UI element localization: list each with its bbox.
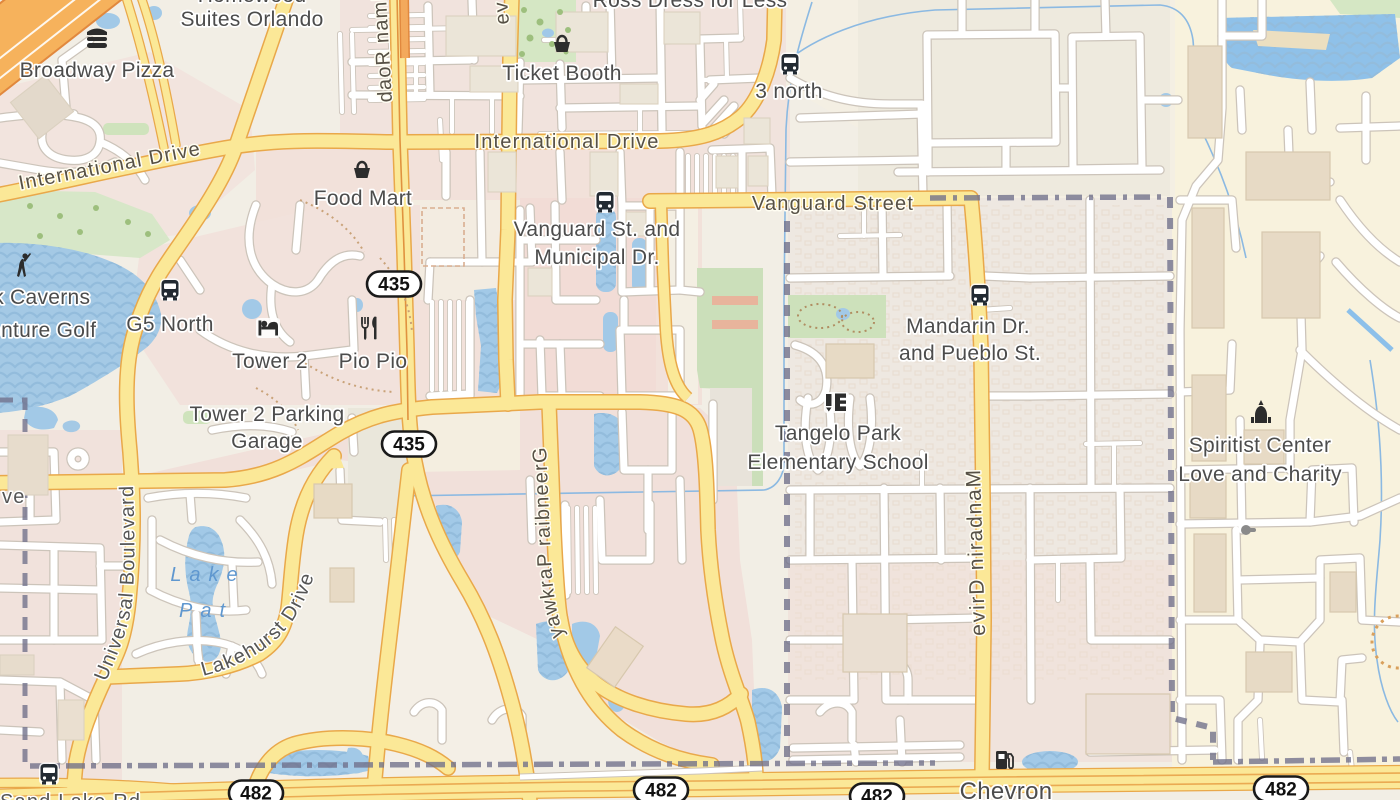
svg-text:Caverns: Caverns bbox=[10, 286, 90, 309]
svg-text:Chevron: Chevron bbox=[960, 778, 1053, 800]
svg-text:Ross Dress for Less: Ross Dress for Less bbox=[593, 0, 788, 12]
svg-text:Vanguard Street: Vanguard Street bbox=[752, 193, 914, 215]
svg-text:Tangelo Park: Tangelo Park bbox=[775, 422, 901, 445]
svg-text:Garage: Garage bbox=[231, 430, 303, 453]
svg-text:Broadway Pizza: Broadway Pizza bbox=[20, 59, 175, 82]
svg-text:Pat: Pat bbox=[179, 600, 233, 622]
svg-text:Vanguard St. and: Vanguard St. and bbox=[514, 218, 681, 241]
svg-text:ve: ve bbox=[2, 486, 26, 508]
svg-text:Tower 2: Tower 2 bbox=[232, 350, 308, 373]
svg-text:Lake: Lake bbox=[170, 564, 245, 586]
svg-text:Pio Pio: Pio Pio bbox=[339, 350, 408, 373]
svg-text:Ticket Booth: Ticket Booth bbox=[502, 62, 622, 85]
svg-text:Spiritist Center: Spiritist Center bbox=[1189, 434, 1332, 457]
svg-text:and Pueblo St.: and Pueblo St. bbox=[899, 342, 1041, 365]
svg-text:G5 North: G5 North bbox=[126, 313, 214, 336]
svg-text:3 north: 3 north bbox=[755, 80, 822, 103]
svg-text:Municipal Dr.: Municipal Dr. bbox=[534, 246, 659, 269]
svg-text:Homewood: Homewood bbox=[198, 0, 307, 7]
svg-text:International Drive: International Drive bbox=[474, 131, 659, 153]
svg-text:ev: ev bbox=[490, 0, 514, 25]
svg-text:435: 435 bbox=[378, 275, 410, 296]
svg-text:Sand Lake Rd: Sand Lake Rd bbox=[0, 791, 141, 800]
svg-text:Suites Orlando: Suites Orlando bbox=[180, 8, 323, 31]
svg-text:Food Mart: Food Mart bbox=[314, 187, 412, 210]
svg-text:Adventure Golf: Adventure Golf bbox=[0, 319, 96, 342]
svg-text:Rock: Rock bbox=[0, 286, 4, 309]
svg-text:Mandarin Dr.: Mandarin Dr. bbox=[906, 315, 1030, 338]
svg-text:Love and Charity: Love and Charity bbox=[1178, 463, 1342, 486]
svg-text:Tower 2 Parking: Tower 2 Parking bbox=[189, 403, 344, 426]
svg-text:Elementary School: Elementary School bbox=[747, 451, 928, 474]
svg-text:482: 482 bbox=[240, 784, 272, 800]
